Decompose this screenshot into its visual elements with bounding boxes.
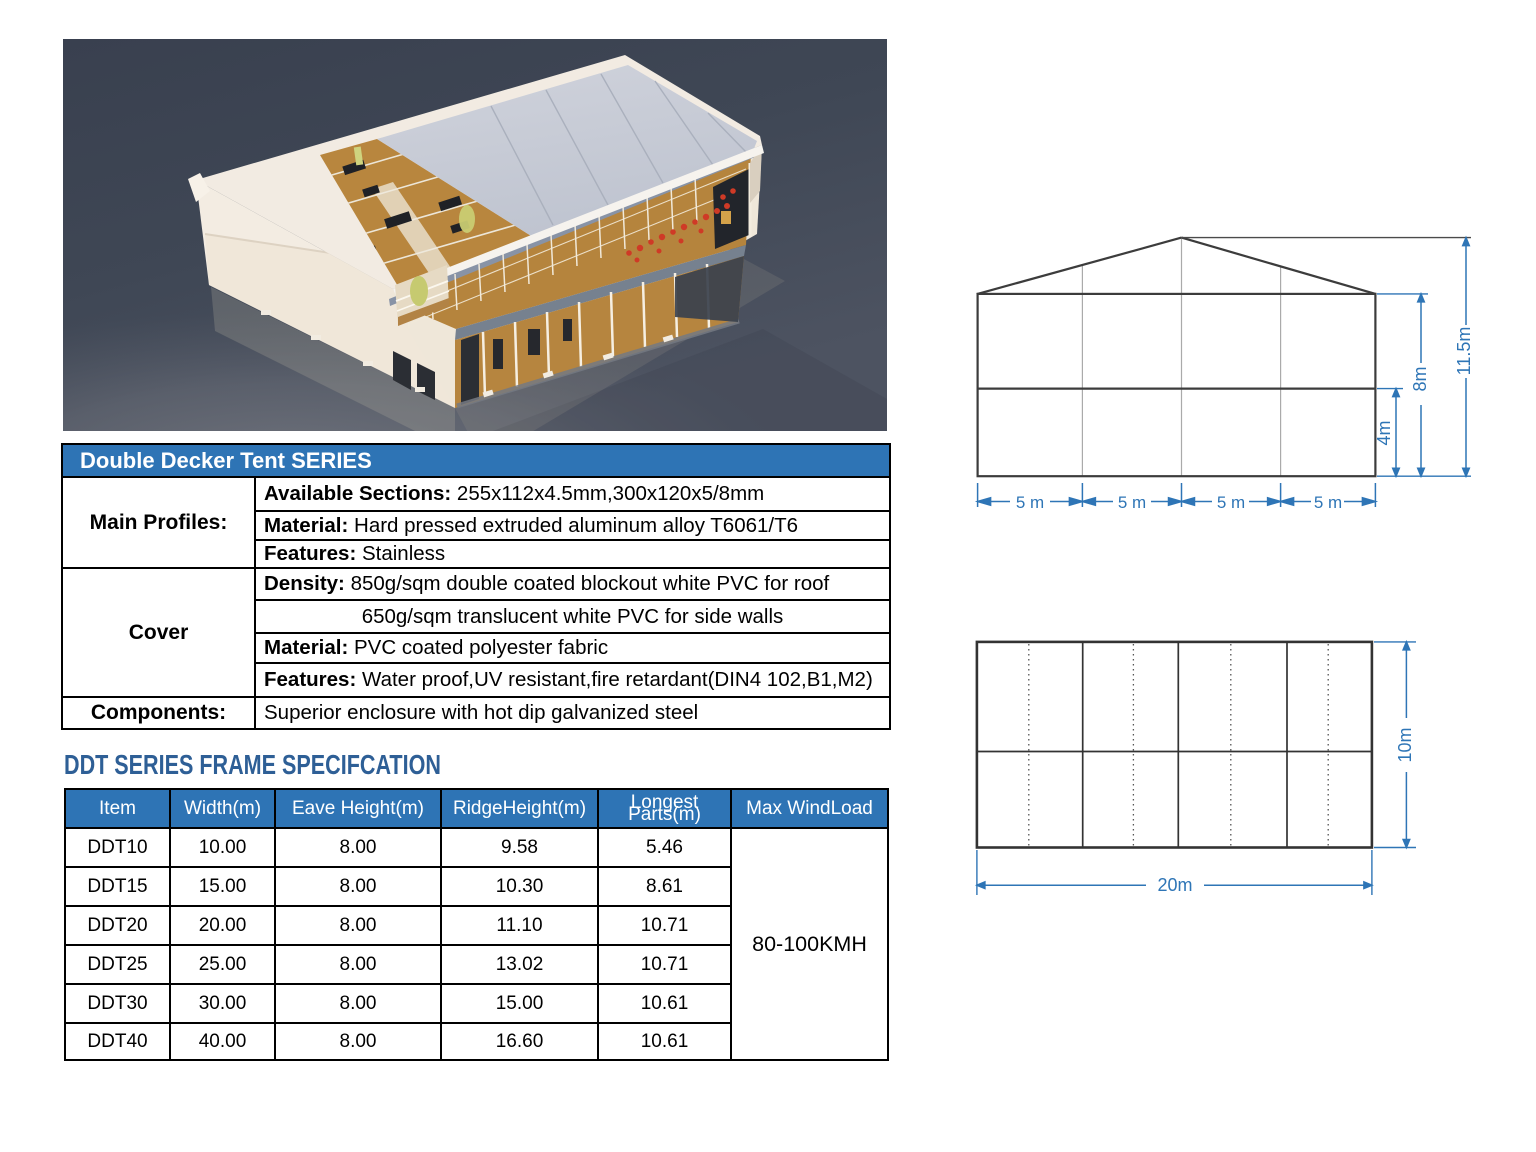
- svg-text:11.5m: 11.5m: [1454, 327, 1474, 376]
- svg-text:5 m: 5 m: [1217, 493, 1245, 512]
- svg-text:10m: 10m: [1395, 727, 1415, 762]
- svg-text:5 m: 5 m: [1118, 493, 1146, 512]
- svg-text:4m: 4m: [1374, 420, 1394, 445]
- svg-text:5 m: 5 m: [1314, 493, 1342, 512]
- svg-text:5 m: 5 m: [1016, 493, 1044, 512]
- svg-text:20m: 20m: [1157, 875, 1192, 895]
- svg-text:8m: 8m: [1410, 366, 1430, 391]
